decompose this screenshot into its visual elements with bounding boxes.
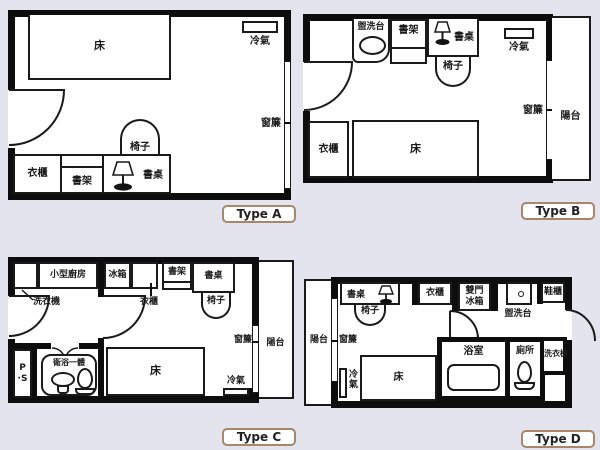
type-a-badge-label: Type A [237,207,282,221]
curtain-label: 窗簾 [339,335,357,345]
bathroom: 浴室 [437,337,510,401]
balcony-label: 陽台 [306,335,332,345]
chair: 椅子 [120,119,160,156]
bookshelf-label: 書架 [399,25,419,36]
type-d-badge: Type D [521,430,595,448]
toilet-base-icon [514,382,535,390]
desk: 書桌 [427,19,479,57]
wardrobe: 衣櫃 [418,282,452,305]
desk: 書桌 [192,262,235,293]
washbasin [506,282,532,305]
floorplan-type-b: 盥洗台 書架 書桌 椅子 冷氣 衣櫃 [303,14,553,183]
balcony-label: 陽台 [259,338,292,348]
washer-label: 洗衣機 [544,349,568,358]
ac-unit [504,28,534,39]
type-b-badge-label: Type B [536,204,581,218]
bed-label: 床 [410,143,421,155]
bookshelf: 書架 [162,262,192,290]
kitchen-label: 小型廚房 [50,270,86,280]
chair: 椅子 [201,293,231,319]
door-swing-icon [565,309,596,342]
bed: 床 [360,355,437,401]
unit-bath: 衛浴一體 [41,354,97,396]
bed-label: 床 [394,372,404,383]
floorplan-type-c: 小型廚房 冰箱 書架 書桌 椅子 洗衣機 衣櫃 [8,257,259,403]
floorplan-type-a: 床 冷氣 窗簾 椅子 衣櫃 書架 書 [8,10,291,200]
double-door-fridge: 雙門 冰箱 [458,282,491,311]
chair-label: 椅子 [437,61,469,72]
door-swing-icon [8,294,56,340]
toilet-base-icon [75,388,95,395]
desk-label: 書桌 [204,271,222,281]
bookshelf-label: 書架 [168,267,186,277]
floorplan-sheet: 床 冷氣 窗簾 椅子 衣櫃 書架 書 [0,0,600,450]
bookshelf-label: 書架 [72,176,92,187]
wardrobe: 衣櫃 [13,154,62,194]
bed: 床 [28,15,171,80]
ac-unit [339,368,347,398]
curtain-label: 窗簾 [523,105,543,116]
window-tick [331,340,338,342]
interior-wall [32,349,37,396]
pipe-space-label: P ·S [18,363,28,383]
washbasin-label: 盥洗台 [496,309,540,319]
wardrobe: 衣櫃 [308,121,349,178]
chair-label: 椅子 [356,306,384,316]
curtain-label: 窗簾 [234,335,252,345]
bookshelf: 書架 [390,19,427,64]
wardrobe-label: 衣櫃 [426,288,444,298]
bathroom-label: 浴室 [442,346,505,357]
curtain-label: 窗簾 [261,118,281,129]
bed-label: 床 [150,365,161,377]
washbasin: 盥洗台 [352,19,390,63]
bookshelf-divider [164,281,190,283]
chair: 椅子 [354,305,386,326]
balcony: 陽台 [552,16,591,181]
interior-wall [491,284,498,311]
balcony: 陽台 [304,279,332,406]
type-c-badge: Type C [222,428,296,446]
door-swing-icon [8,88,70,148]
sink-icon [359,36,386,55]
ac-unit [223,388,249,396]
desk-lamp-icon [378,285,394,306]
balcony: 陽台 [259,260,294,399]
ac-label: 冷氣 [221,376,251,386]
toilet-icon [77,368,93,389]
type-c-badge-label: Type C [237,430,281,444]
double-door-fridge-label: 雙門 冰箱 [465,286,483,306]
chair-label: 椅子 [203,296,229,306]
chair-label: 椅子 [122,142,158,153]
interior-wall [79,343,104,349]
ac-label: 冷 氣 [349,370,358,390]
fridge: 冰箱 [104,262,131,289]
wardrobe [131,262,158,289]
window [284,61,291,189]
washbasin-label: 盥洗台 [354,22,388,32]
wardrobe-label: 衣櫃 [28,168,48,179]
floorplan-type-d: 窗簾 書桌 椅子 衣櫃 雙門 冰箱 盥洗台 鞋櫃 [331,277,572,408]
bookshelf-divider [62,166,102,168]
desk-label: 書桌 [347,290,365,300]
type-b-badge: Type B [521,202,595,220]
unit-bath-label: 衛浴一體 [43,359,95,368]
ac-label: 冷氣 [237,36,283,47]
ac-label: 冷氣 [502,42,536,53]
bed: 床 [106,347,205,396]
bookshelf: 書架 [60,154,104,194]
pipe-space: P ·S [13,349,32,398]
desk: 書桌 [102,154,171,194]
toilet-icon [517,361,532,383]
balcony-label: 陽台 [552,111,589,122]
desk-label: 書桌 [454,32,474,43]
washing-machine [13,262,38,289]
kitchen: 小型廚房 [38,262,98,289]
desk-label: 書桌 [143,170,163,181]
door-swing-icon [303,60,359,114]
sink-pedestal-icon [57,385,69,394]
bed-label: 床 [94,40,105,52]
window-tick [284,122,291,124]
wardrobe-pointer-line [150,283,152,296]
window-tick [252,341,259,343]
door-swing-icon [102,294,150,342]
ac-unit [242,21,278,33]
window [252,325,259,393]
wardrobe-label: 衣櫃 [319,144,339,155]
toilet-label: 廁所 [510,346,540,356]
desk: 書桌 [340,282,400,305]
desk-lamp-icon [111,160,135,192]
desk-lamp-icon [433,21,451,47]
washing-machine: 洗衣機 [540,337,567,375]
bookshelf-divider [392,47,425,49]
type-a-badge: Type A [222,205,296,223]
shoe-cabinet-label: 鞋櫃 [544,287,562,297]
bed: 床 [352,120,479,178]
chair: 椅子 [435,57,471,87]
fridge-label: 冰箱 [108,270,126,280]
sink-drain-icon [518,291,524,297]
type-d-badge-label: Type D [535,432,580,446]
bathtub-icon [447,364,500,391]
shoe-cabinet: 鞋櫃 [541,282,565,303]
toilet-room: 廁所 [505,337,545,401]
